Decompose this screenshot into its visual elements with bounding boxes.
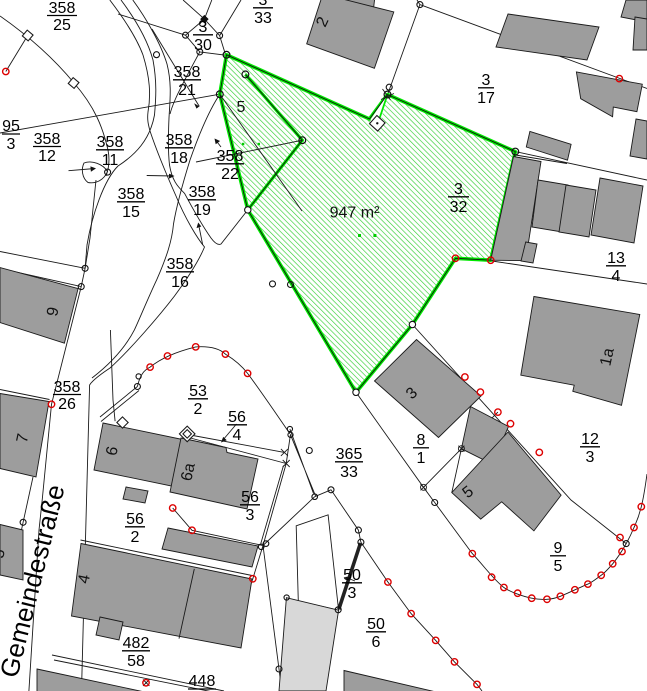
svg-text:50: 50 [343, 567, 361, 584]
svg-text:95: 95 [2, 118, 20, 135]
svg-text:12: 12 [581, 431, 599, 448]
svg-text:50: 50 [367, 616, 385, 633]
svg-text:21: 21 [178, 82, 196, 99]
svg-text:56: 56 [228, 409, 246, 426]
svg-text:358: 358 [49, 0, 76, 17]
svg-text:12: 12 [38, 148, 56, 165]
svg-text:4: 4 [233, 427, 242, 444]
svg-text:1: 1 [417, 450, 426, 467]
svg-text:358: 358 [34, 131, 61, 148]
svg-text:482: 482 [123, 635, 150, 652]
svg-text:58: 58 [127, 653, 145, 670]
svg-text:358: 358 [97, 134, 124, 151]
svg-text:6a: 6a [178, 461, 198, 482]
svg-text:2: 2 [194, 401, 203, 418]
svg-text:18: 18 [170, 150, 188, 167]
svg-text:53: 53 [189, 383, 207, 400]
svg-text:33: 33 [340, 464, 358, 481]
svg-text:358: 358 [174, 64, 201, 81]
svg-text:3: 3 [348, 585, 357, 602]
svg-text:8: 8 [417, 432, 426, 449]
svg-text:13: 13 [607, 250, 625, 267]
svg-text:2: 2 [131, 529, 140, 546]
svg-text:3: 3 [7, 136, 16, 153]
svg-text:32: 32 [450, 199, 468, 216]
svg-text:358: 358 [217, 148, 244, 165]
svg-text:33: 33 [254, 10, 272, 27]
svg-text:56: 56 [126, 511, 144, 528]
svg-text:358: 358 [166, 132, 193, 149]
svg-text:5: 5 [237, 99, 246, 116]
svg-text:6: 6 [372, 634, 381, 651]
svg-text:365: 365 [336, 446, 363, 463]
svg-text:3: 3 [586, 449, 595, 466]
svg-text:3: 3 [482, 72, 491, 89]
svg-text:9: 9 [554, 540, 563, 557]
svg-text:3: 3 [246, 507, 255, 524]
svg-text:5: 5 [554, 558, 563, 575]
svg-text:22: 22 [221, 166, 239, 183]
svg-text:358: 358 [189, 184, 216, 201]
svg-text:4: 4 [612, 268, 621, 285]
svg-text:16: 16 [171, 274, 189, 291]
svg-text:25: 25 [53, 17, 71, 34]
svg-text:358: 358 [54, 379, 81, 396]
svg-text:358: 358 [167, 256, 194, 273]
svg-text:1a: 1a [597, 346, 617, 367]
svg-text:947 m²: 947 m² [330, 205, 380, 222]
svg-text:26: 26 [58, 396, 76, 413]
svg-text:11: 11 [102, 152, 119, 169]
svg-text:15: 15 [122, 204, 140, 221]
svg-text:358: 358 [118, 186, 145, 203]
svg-text:19: 19 [193, 202, 211, 219]
svg-text:3: 3 [454, 181, 463, 198]
svg-text:17: 17 [477, 90, 495, 107]
svg-text:3: 3 [199, 19, 208, 36]
svg-text:56: 56 [241, 489, 259, 506]
svg-text:30: 30 [194, 37, 212, 54]
svg-text:448: 448 [189, 673, 216, 690]
